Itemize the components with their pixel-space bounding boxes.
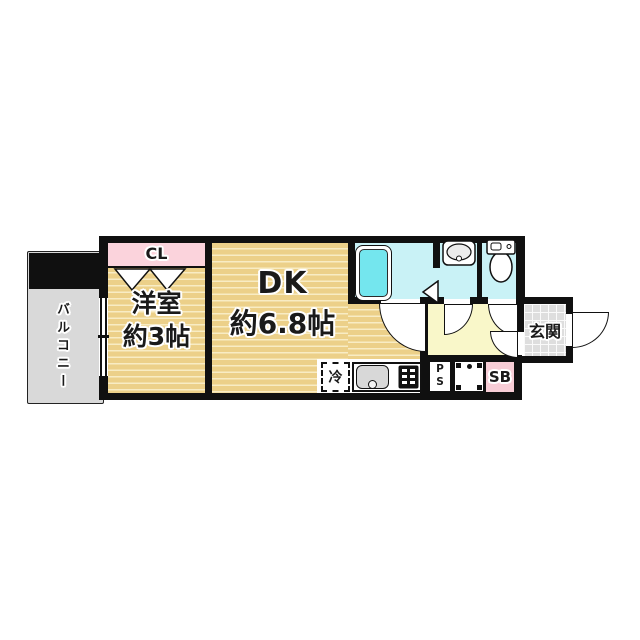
entrance-door-swing-arc [572, 312, 609, 348]
dk-label: DK 約6.8帖 [205, 264, 360, 342]
entrance-label: 玄関 [522, 318, 568, 342]
wall-segment [516, 356, 573, 363]
balcony-label: バルコニー [41, 296, 71, 398]
wall-segment [516, 297, 573, 304]
western-room-label: 洋室 約3帖 [108, 288, 205, 353]
wall-segment [433, 238, 440, 268]
washbasin-icon [442, 240, 478, 267]
pipe-space-label: P S [430, 363, 450, 388]
washing-machine-icon [455, 362, 483, 391]
bathtub-icon [355, 245, 392, 301]
bath-folding-door-icon [421, 280, 439, 304]
refrigerator-label: 冷 [321, 367, 350, 387]
closet-label: CL [108, 244, 205, 263]
shoe-box-label: SB [486, 368, 514, 386]
pipe-space-box: P S [430, 362, 450, 391]
stove-icon [398, 365, 419, 389]
kitchen-faucet-icon [368, 380, 377, 389]
wall-segment [99, 236, 108, 298]
toilet-icon [486, 239, 518, 285]
balcony-wall-block [29, 253, 104, 289]
floor-plan: バルコニー [0, 0, 640, 640]
